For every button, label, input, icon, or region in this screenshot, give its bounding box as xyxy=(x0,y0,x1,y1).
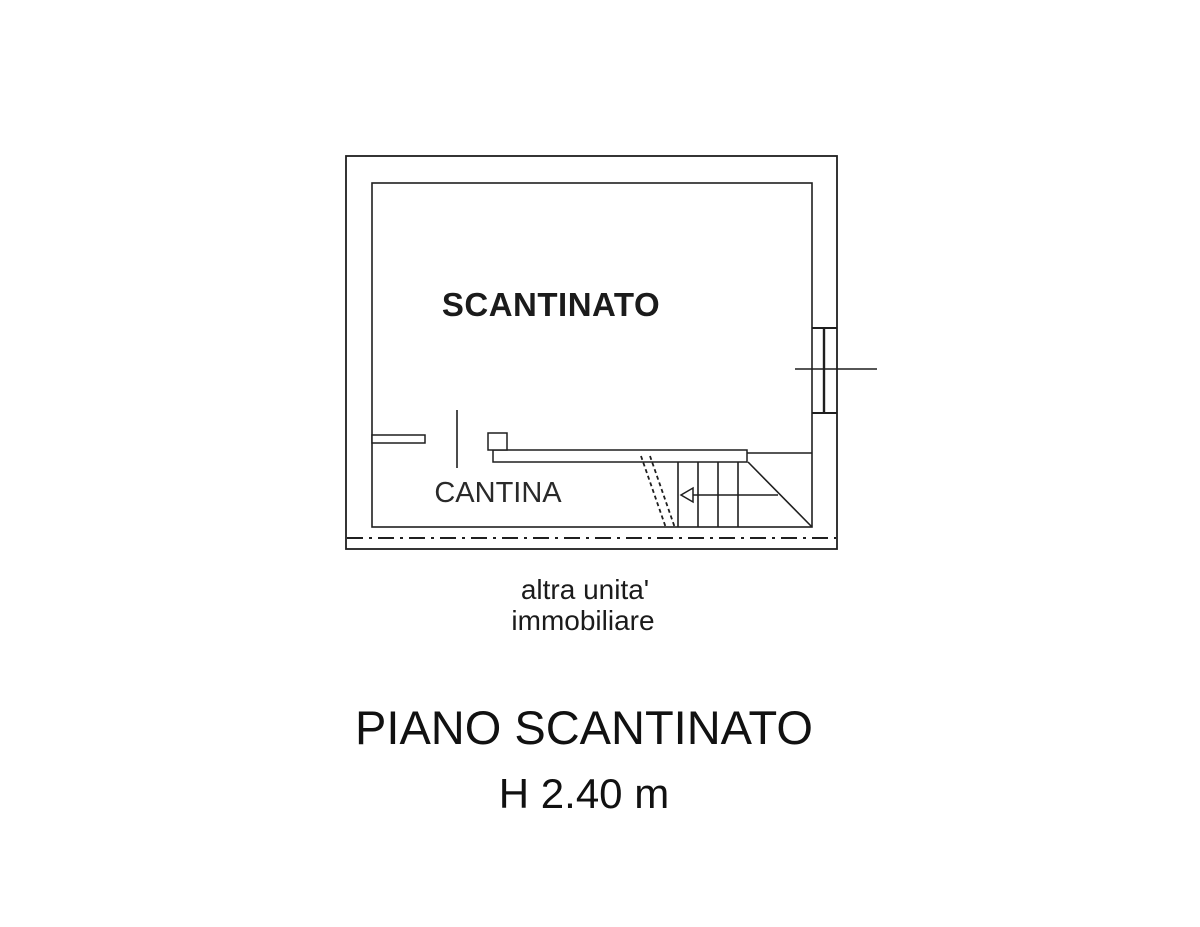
floor-plan-page: SCANTINATO CANTINA altra unita' immobili… xyxy=(0,0,1200,927)
inner-wall xyxy=(372,183,812,527)
boundary-note-line2: immobiliare xyxy=(433,607,733,635)
plan-height-note: H 2.40 m xyxy=(234,773,934,815)
stair-cut-lines xyxy=(641,456,675,528)
boundary-note-line1: altra unita' xyxy=(435,576,735,604)
stair-direction-arrow xyxy=(681,488,778,502)
partition-wall-stub xyxy=(372,435,425,443)
arrow-head-icon xyxy=(681,488,693,502)
room-label-cantina: CANTINA xyxy=(428,479,568,508)
plan-title: PIANO SCANTINATO xyxy=(234,704,934,751)
partition-wall-step xyxy=(488,433,507,450)
partition-wall-band xyxy=(493,450,747,462)
room-label-scantinato: SCANTINATO xyxy=(438,288,664,321)
window xyxy=(795,328,877,413)
outer-wall xyxy=(346,156,837,549)
